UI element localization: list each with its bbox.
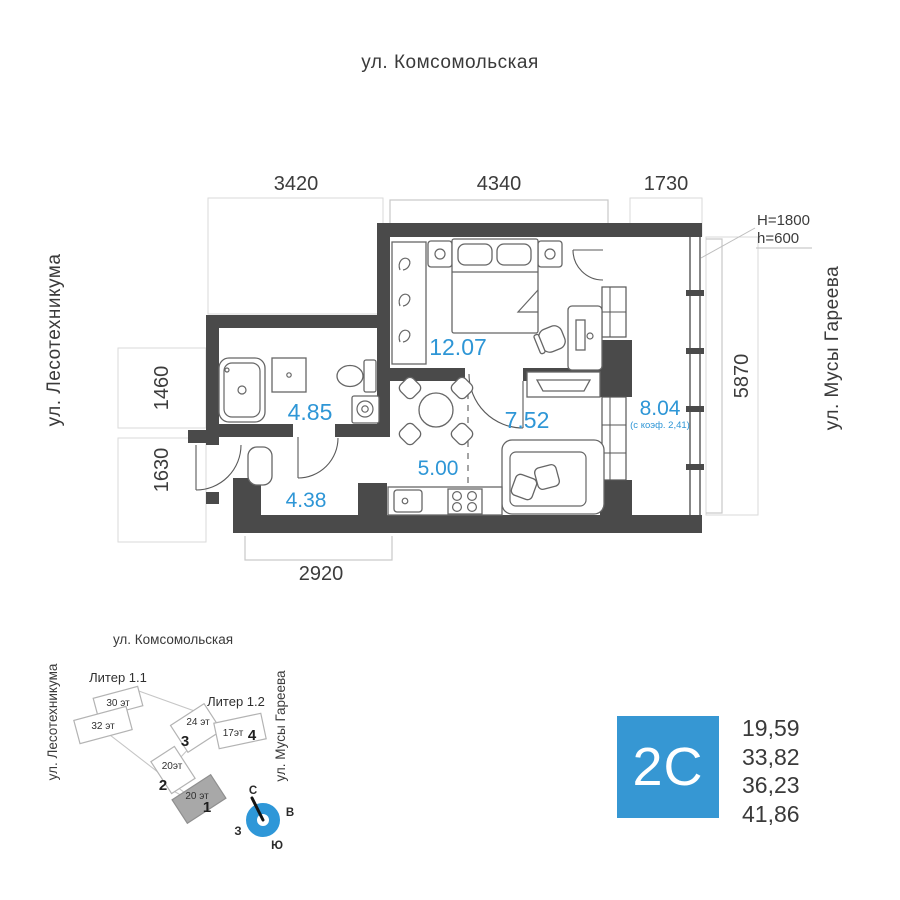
site-street-right: ул. Мусы Гареева: [273, 670, 288, 782]
tv: [537, 380, 590, 391]
area-value: 41,86: [742, 800, 800, 829]
svg-text:17эт: 17эт: [223, 728, 244, 739]
building-2-number: 2: [159, 777, 167, 794]
area-hall: 4.38: [286, 489, 327, 512]
building-3-number: 3: [181, 733, 189, 750]
bedroom-furniture: [392, 239, 602, 370]
building-4-number: 4: [248, 727, 257, 744]
dim-1630: 1630: [151, 448, 173, 493]
nightstand: [428, 241, 452, 267]
glazing-height-label: H=1800: [757, 212, 810, 229]
street-label-top: ул. Комсомольская: [361, 52, 539, 73]
pillow: [458, 244, 492, 265]
site-street-left: ул. Лесотехникума: [45, 663, 60, 780]
site-plan: ул. Комсомольская ул. Лесотехникума ул. …: [45, 632, 294, 852]
vanity-sink: [272, 358, 306, 392]
area-loggia: 8.04: [640, 397, 681, 420]
area-loggia-note: (с коэф. 2,41): [630, 420, 690, 431]
floorplan-page: ул. Комсомольская ул. Лесотехникума ул. …: [0, 0, 900, 900]
area-kitchen: 5.00: [418, 457, 459, 480]
dining-table: [419, 393, 453, 427]
hall-furniture: [248, 447, 272, 485]
sill-height-label: h=600: [757, 230, 799, 247]
building-24: [171, 704, 222, 753]
bathtub: [219, 358, 265, 422]
compass-east: В: [286, 807, 294, 819]
area-value: 19,59: [742, 714, 800, 743]
washing-machine: [352, 396, 379, 423]
dim-4340: 4340: [477, 173, 522, 195]
dim-5870: 5870: [731, 354, 753, 399]
pillow: [497, 244, 531, 265]
dim-2920: 2920: [299, 563, 344, 585]
compass: С В Ю З: [234, 785, 294, 852]
site-street-top: ул. Комсомольская: [113, 632, 233, 647]
living-furniture: [502, 372, 604, 514]
bathroom-door-arc: [298, 438, 338, 478]
compass-north: С: [249, 785, 257, 797]
sofa-pillow: [534, 464, 561, 491]
area-living: 7.52: [505, 407, 550, 433]
compass-south: Ю: [271, 840, 283, 852]
toilet: [337, 366, 363, 387]
liter-1-2-label: Литер 1.2: [207, 694, 265, 709]
nightstand: [538, 241, 562, 267]
dim-1460: 1460: [151, 366, 173, 411]
svg-text:24 эт: 24 эт: [186, 717, 210, 728]
loggia-door-arc: [573, 250, 603, 280]
apartment-type-label: 2С: [632, 736, 703, 798]
svg-text:32 эт: 32 эт: [91, 721, 115, 732]
apartment-type-badge[interactable]: 2С: [617, 716, 719, 818]
chair: [397, 421, 422, 446]
kitchen-furniture: [388, 375, 502, 515]
street-label-right: ул. Мусы Гареева: [822, 266, 843, 430]
dim-3420: 3420: [274, 173, 319, 195]
hall-cabinet: [248, 447, 272, 485]
svg-text:20эт: 20эт: [162, 761, 183, 772]
building-1-number: 1: [203, 799, 211, 816]
dim-1730: 1730: [644, 173, 689, 195]
area-bathroom: 4.85: [288, 399, 333, 425]
area-bedroom: 12.07: [429, 334, 487, 360]
street-label-left: ул. Лесотехникума: [44, 254, 65, 427]
apartment-areas-list: 19,59 33,82 36,23 41,86: [742, 714, 800, 828]
monitor: [576, 320, 585, 350]
area-value: 33,82: [742, 743, 800, 772]
area-value: 36,23: [742, 771, 800, 800]
stove: [448, 489, 482, 514]
toilet-tank: [364, 360, 376, 392]
chair: [449, 421, 474, 446]
liter-1-1-label: Литер 1.1: [89, 670, 147, 685]
compass-west: З: [234, 826, 241, 838]
living-window-unit: [602, 397, 626, 480]
